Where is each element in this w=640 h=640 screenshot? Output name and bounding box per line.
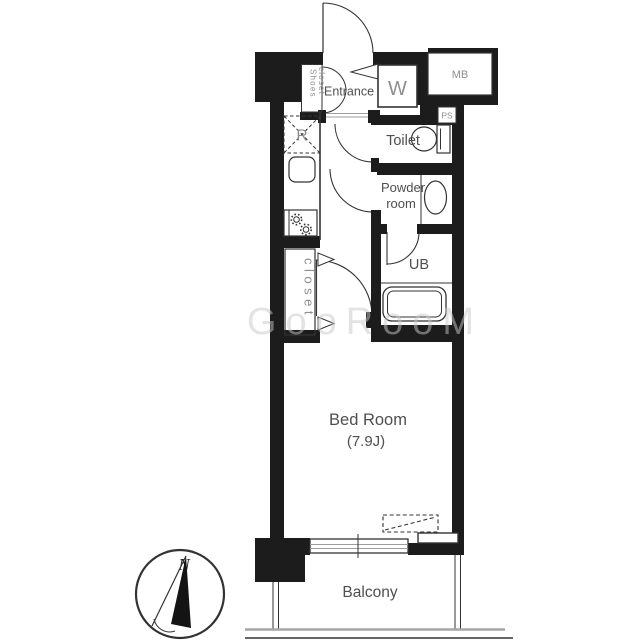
- wall-segment: [377, 163, 464, 175]
- toilet-tank-icon: [437, 125, 450, 153]
- wall-segment: [284, 538, 310, 555]
- wall-segment: [428, 48, 498, 53]
- door-symbols: [316, 3, 419, 316]
- balcony-label: Balcony: [342, 584, 397, 601]
- wall-segment: [270, 236, 320, 248]
- wall-segment: [302, 52, 323, 65]
- toilet-label: Toilet: [386, 133, 420, 149]
- wall-segment: [368, 110, 380, 123]
- shoes-closet-label-line1: Shoes: [309, 69, 318, 98]
- ac-unit-space-box: [383, 515, 438, 532]
- toilet-door-arc: [335, 124, 373, 162]
- powder-room-label-line2: room: [386, 196, 416, 211]
- stove-burner-icon: [291, 214, 301, 224]
- bedroom-label-line1: Bed Room: [329, 411, 407, 429]
- floor-plan-image: Entrance W MB PS Toilet Powder room UB R…: [0, 0, 640, 640]
- meter-box-label: MB: [452, 69, 469, 81]
- wall-segment: [373, 52, 418, 65]
- floor-plan: Entrance W MB PS Toilet Powder room UB R…: [0, 0, 640, 640]
- watermark-text: GooRooM: [247, 301, 483, 343]
- pipe-space-label: PS: [441, 111, 453, 121]
- wall-notch-box: [418, 533, 458, 543]
- wall-segment: [417, 52, 428, 95]
- stove-burner-icon: [301, 224, 311, 234]
- powder-room-label-line1: Powder: [381, 180, 426, 195]
- bedroom-label-line2: (7.9J): [347, 433, 385, 450]
- entrance-door-arc: [323, 3, 373, 53]
- shoes-closet-label-line2: closet: [317, 67, 326, 95]
- powder-room-door-arc: [330, 169, 373, 212]
- kitchen-sink-icon: [289, 157, 315, 182]
- wall-segment: [417, 95, 498, 105]
- washing-machine-label: W: [388, 78, 407, 100]
- entrance-step-arrow-icon: [351, 64, 378, 79]
- washbasin-icon: [425, 181, 447, 214]
- closet-door-arrow-icon: [318, 253, 334, 266]
- refrigerator-label: R: [296, 128, 307, 145]
- unit-bath-label: UB: [409, 257, 429, 273]
- entrance-label: Entrance: [324, 85, 374, 99]
- compass: N: [136, 550, 224, 638]
- balcony-window: [310, 539, 408, 553]
- wall-segment: [371, 158, 379, 172]
- wall-segment: [255, 52, 302, 102]
